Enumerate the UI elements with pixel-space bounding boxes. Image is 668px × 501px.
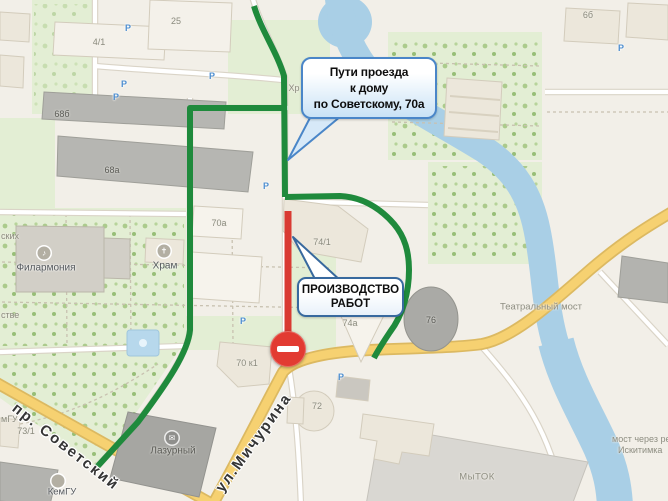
philharmonic-label: Филармония bbox=[16, 263, 75, 274]
route-callout-line3: по Советскому, 70а bbox=[304, 96, 434, 112]
parking-icon[interactable]: P bbox=[209, 71, 215, 81]
parking-icon[interactable]: P bbox=[125, 23, 131, 33]
parking-icon[interactable]: P bbox=[121, 79, 127, 89]
temple-label: Храм bbox=[153, 261, 178, 272]
lazurny-icon[interactable]: ✉ bbox=[166, 432, 179, 445]
building-label-4-1: 4/1 bbox=[93, 37, 106, 47]
building-label-72: 72 bbox=[312, 401, 322, 411]
parking-icon[interactable]: P bbox=[263, 181, 269, 191]
roadwork-callout-line1: ПРОИЗВОДСТВО bbox=[300, 283, 401, 297]
theatre-bridge-label: Театральный мост bbox=[500, 302, 582, 313]
building-label-68b: 68б bbox=[54, 109, 69, 119]
philharmonic-icon[interactable]: ♪ bbox=[38, 247, 51, 260]
parking-icon[interactable]: P bbox=[240, 316, 246, 326]
map-screenshot[interactable]: 25 4/1 6б 68б 68а 70а 74/1 74а 76 70 к1 … bbox=[0, 0, 668, 501]
building-label-70k1: 70 к1 bbox=[236, 358, 257, 368]
no-entry-sign-icon bbox=[270, 331, 306, 367]
building-label-25: 25 bbox=[171, 16, 181, 26]
lazurny-label: Лазурный bbox=[150, 446, 195, 457]
parking-icon[interactable]: P bbox=[618, 43, 624, 53]
partial-label-left-mid: стве bbox=[1, 310, 19, 320]
roadwork-callout-line2: РАБОТ bbox=[300, 297, 401, 311]
building-label-68a: 68а bbox=[104, 165, 119, 175]
building-label-74a: 74а bbox=[342, 318, 357, 328]
route-callout-line2: к дому bbox=[304, 80, 434, 96]
building-label-70a: 70а bbox=[211, 218, 226, 228]
building-label-74-1: 74/1 bbox=[313, 237, 331, 247]
route-callout: Пути проезда к дому по Советскому, 70а bbox=[301, 57, 437, 119]
building-label-76: 76 bbox=[426, 315, 436, 325]
fountain bbox=[127, 330, 159, 356]
partial-label-left-top: ских bbox=[1, 231, 19, 241]
temple-icon[interactable]: ✝ bbox=[158, 245, 171, 258]
roadwork-callout: ПРОИЗВОДСТВО РАБОТ bbox=[297, 277, 404, 317]
kemgu-label: КемГУ bbox=[48, 487, 77, 498]
iskitimka-bridge-label-line1: мост через ре bbox=[612, 434, 668, 444]
building-label-6b: 6б bbox=[583, 10, 593, 20]
route-callout-line1: Пути проезда bbox=[304, 64, 434, 80]
iskitimka-bridge-label-line2: Искитимка bbox=[618, 445, 662, 455]
parking-icon[interactable]: P bbox=[338, 372, 344, 382]
partial-label-center: Хр bbox=[288, 83, 299, 93]
parking-icon[interactable]: P bbox=[113, 92, 119, 102]
mytok-label: МыТОК bbox=[459, 472, 495, 483]
